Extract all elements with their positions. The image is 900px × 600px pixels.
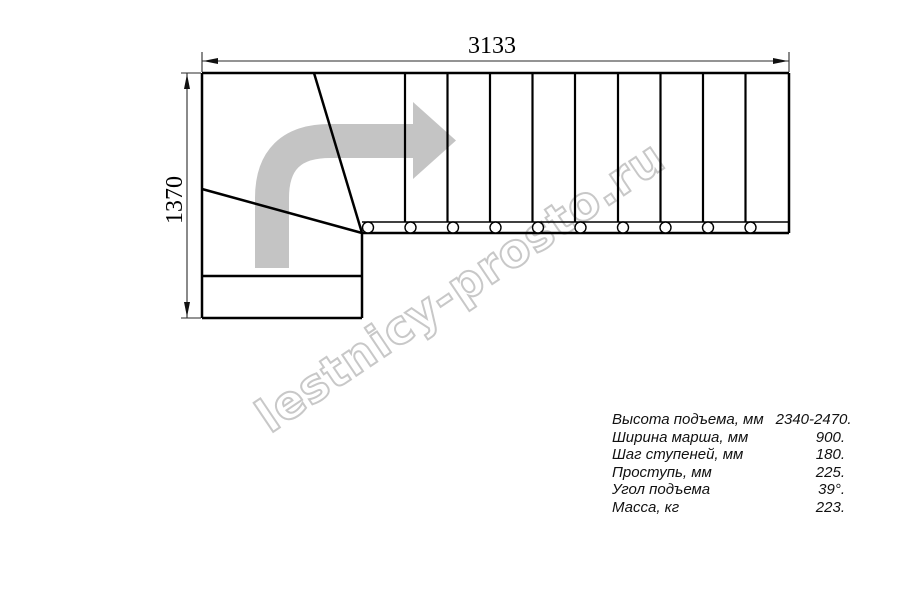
direction-arrow-head-icon [413, 102, 456, 179]
spec-value: 180. [804, 446, 845, 464]
dimension-width: 3133 [202, 33, 789, 72]
straight-tread-lines [405, 73, 746, 222]
baluster-circle [745, 222, 756, 233]
spec-label: Угол подъема [612, 481, 710, 499]
dimension-height-label: 1370 [162, 176, 188, 224]
spec-value: 39°. [806, 481, 845, 499]
baluster-circle [703, 222, 714, 233]
dimension-arrow-up-icon [184, 74, 190, 89]
direction-arrow [272, 102, 456, 268]
watermark-text: lestnicy-prosto.ru [246, 130, 674, 443]
spec-row-tread: Проступь, мм 225. [612, 464, 845, 482]
spec-value: 900. [804, 429, 845, 447]
baluster-circle [363, 222, 374, 233]
spec-value: 225. [804, 464, 845, 482]
baluster-circle [490, 222, 501, 233]
baluster-circle [448, 222, 459, 233]
spec-label: Высота подъема, мм [612, 411, 764, 429]
spec-label: Шаг ступеней, мм [612, 446, 743, 464]
spec-label: Проступь, мм [612, 464, 712, 482]
dimension-arrow-right-icon [773, 58, 788, 64]
spec-value: 223. [804, 499, 845, 517]
stair-drawing-canvas: lestnicy-prosto.ru [0, 0, 900, 600]
spec-row-angle: Угол подъема 39°. [612, 481, 845, 499]
dimension-arrow-down-icon [184, 302, 190, 317]
spec-row-width: Ширина марша, мм 900. [612, 429, 845, 447]
spec-table: Высота подъема, мм 2340-2470. Ширина мар… [612, 411, 845, 516]
baluster-circle [575, 222, 586, 233]
baluster-circle [618, 222, 629, 233]
spec-label: Масса, кг [612, 499, 679, 517]
spec-row-height: Высота подъема, мм 2340-2470. [612, 411, 845, 429]
baluster-circle [405, 222, 416, 233]
dimension-width-label: 3133 [468, 33, 516, 59]
spec-row-mass: Масса, кг 223. [612, 499, 845, 517]
direction-arrow-shaft [272, 141, 414, 268]
dimension-height: 1370 [162, 73, 201, 318]
baluster-circle [660, 222, 671, 233]
spec-row-step: Шаг ступеней, мм 180. [612, 446, 845, 464]
dimension-arrow-left-icon [203, 58, 218, 64]
spec-label: Ширина марша, мм [612, 429, 748, 447]
baluster-circle [533, 222, 544, 233]
spec-value: 2340-2470. [764, 411, 852, 429]
